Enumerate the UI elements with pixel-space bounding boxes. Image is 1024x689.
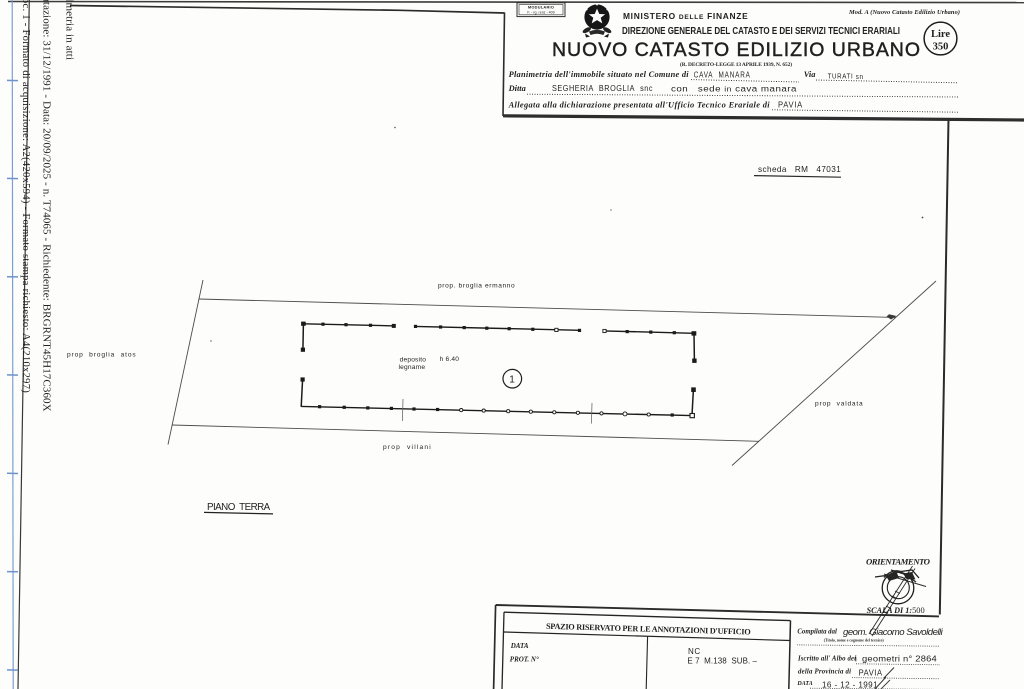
svg-text:E 7 M.138 SUB. –: E 7 M.138 SUB. –	[687, 657, 757, 666]
svg-text:h 6.40: h 6.40	[440, 356, 460, 363]
svg-text:deposito: deposito	[400, 357, 427, 364]
svg-text:SCALA DI 1:500: SCALA DI 1:500	[867, 606, 925, 615]
svg-text:scheda RM 47031: scheda RM 47031	[758, 165, 841, 174]
svg-text:NC: NC	[688, 647, 701, 656]
svg-text:MINISTERO DELLE FINANZE: MINISTERO DELLE FINANZE	[623, 11, 748, 21]
svg-text:geom. Giacomo Savoldelli: geom. Giacomo Savoldelli	[843, 627, 944, 638]
svg-text:(R. DECRETO-LEGGE 13 APRILE 19: (R. DECRETO-LEGGE 13 APRILE 1939, N. 652…	[680, 61, 792, 68]
svg-text:F. - rg. renz - 409: F. - rg. renz - 409	[527, 10, 554, 14]
svg-text:Data di presentazione: 31/12/1: Data di presentazione: 31/12/1991 - Data…	[41, 0, 53, 412]
svg-text:Compilata dal: Compilata dal	[797, 628, 837, 635]
svg-text:Via: Via	[804, 70, 816, 79]
svg-text:Planimetria dell'immobile situ: Planimetria dell'immobile situato nel Co…	[509, 70, 690, 79]
svg-text:Iscritto all' Albo dei: Iscritto all' Albo dei	[797, 655, 856, 662]
svg-text:DIREZIONE GENERALE DEL CATASTO: DIREZIONE GENERALE DEL CATASTO E DEI SER…	[622, 26, 900, 37]
svg-text:350: 350	[933, 42, 949, 53]
svg-text:Mod. A (Nuovo Catasto Edilizio: Mod. A (Nuovo Catasto Edilizio Urbano)	[848, 9, 960, 16]
svg-text:Ditta: Ditta	[508, 84, 526, 93]
svg-text:SEGHERIA BROGLIA snc: SEGHERIA BROGLIA snc	[552, 84, 653, 93]
svg-text:16 - 12 - 1991: 16 - 12 - 1991	[822, 680, 878, 689]
svg-text:i: i	[855, 654, 860, 663]
svg-text:1: 1	[509, 375, 515, 386]
svg-text:DATA: DATA	[796, 681, 812, 687]
svg-text:PROT. N°: PROT. N°	[510, 656, 539, 664]
svg-text:Ultima planimetria in atti: Ultima planimetria in atti	[64, 0, 76, 60]
svg-text:TURATI sn: TURATI sn	[828, 71, 864, 81]
svg-text:Doc. 1 - Formato di acquisizio: Doc. 1 - Formato di acquisizione: A2(420…	[20, 0, 31, 393]
svg-text:geometri n° 2864: geometri n° 2864	[862, 654, 937, 663]
svg-text:prop broglia atos: prop broglia atos	[67, 352, 136, 359]
svg-text:prop valdata: prop valdata	[815, 401, 863, 408]
svg-text:PIANO TERRA: PIANO TERRA	[207, 502, 271, 513]
svg-text:prop villani: prop villani	[383, 444, 431, 451]
svg-text:Lire: Lire	[931, 29, 950, 40]
svg-text:(Titolo, nome e cognome del te: (Titolo, nome e cognome del tecnico)	[824, 639, 885, 643]
svg-text:NUOVO CATASTO EDILIZIO URBANO: NUOVO CATASTO EDILIZIO URBANO	[552, 39, 922, 61]
svg-text:PAVIA: PAVIA	[859, 668, 883, 677]
svg-text:Allegata alla dichiarazione pr: Allegata alla dichiarazione presentata a…	[508, 100, 771, 109]
svg-text:ORIENTAMENTO: ORIENTAMENTO	[866, 556, 931, 566]
svg-text:prop. broglia ermanno: prop. broglia ermanno	[438, 283, 515, 290]
svg-text:CAVA MANARA: CAVA MANARA	[694, 71, 751, 80]
svg-text:DATA: DATA	[510, 642, 529, 650]
svg-text:della Provincia di: della Provincia di	[798, 668, 851, 675]
svg-text:PAVIA: PAVIA	[778, 100, 803, 109]
svg-text:legname: legname	[399, 364, 426, 371]
svg-text:MODULARIO: MODULARIO	[528, 5, 554, 10]
svg-text:con sede in cava manara: con sede in cava manara	[671, 85, 797, 94]
